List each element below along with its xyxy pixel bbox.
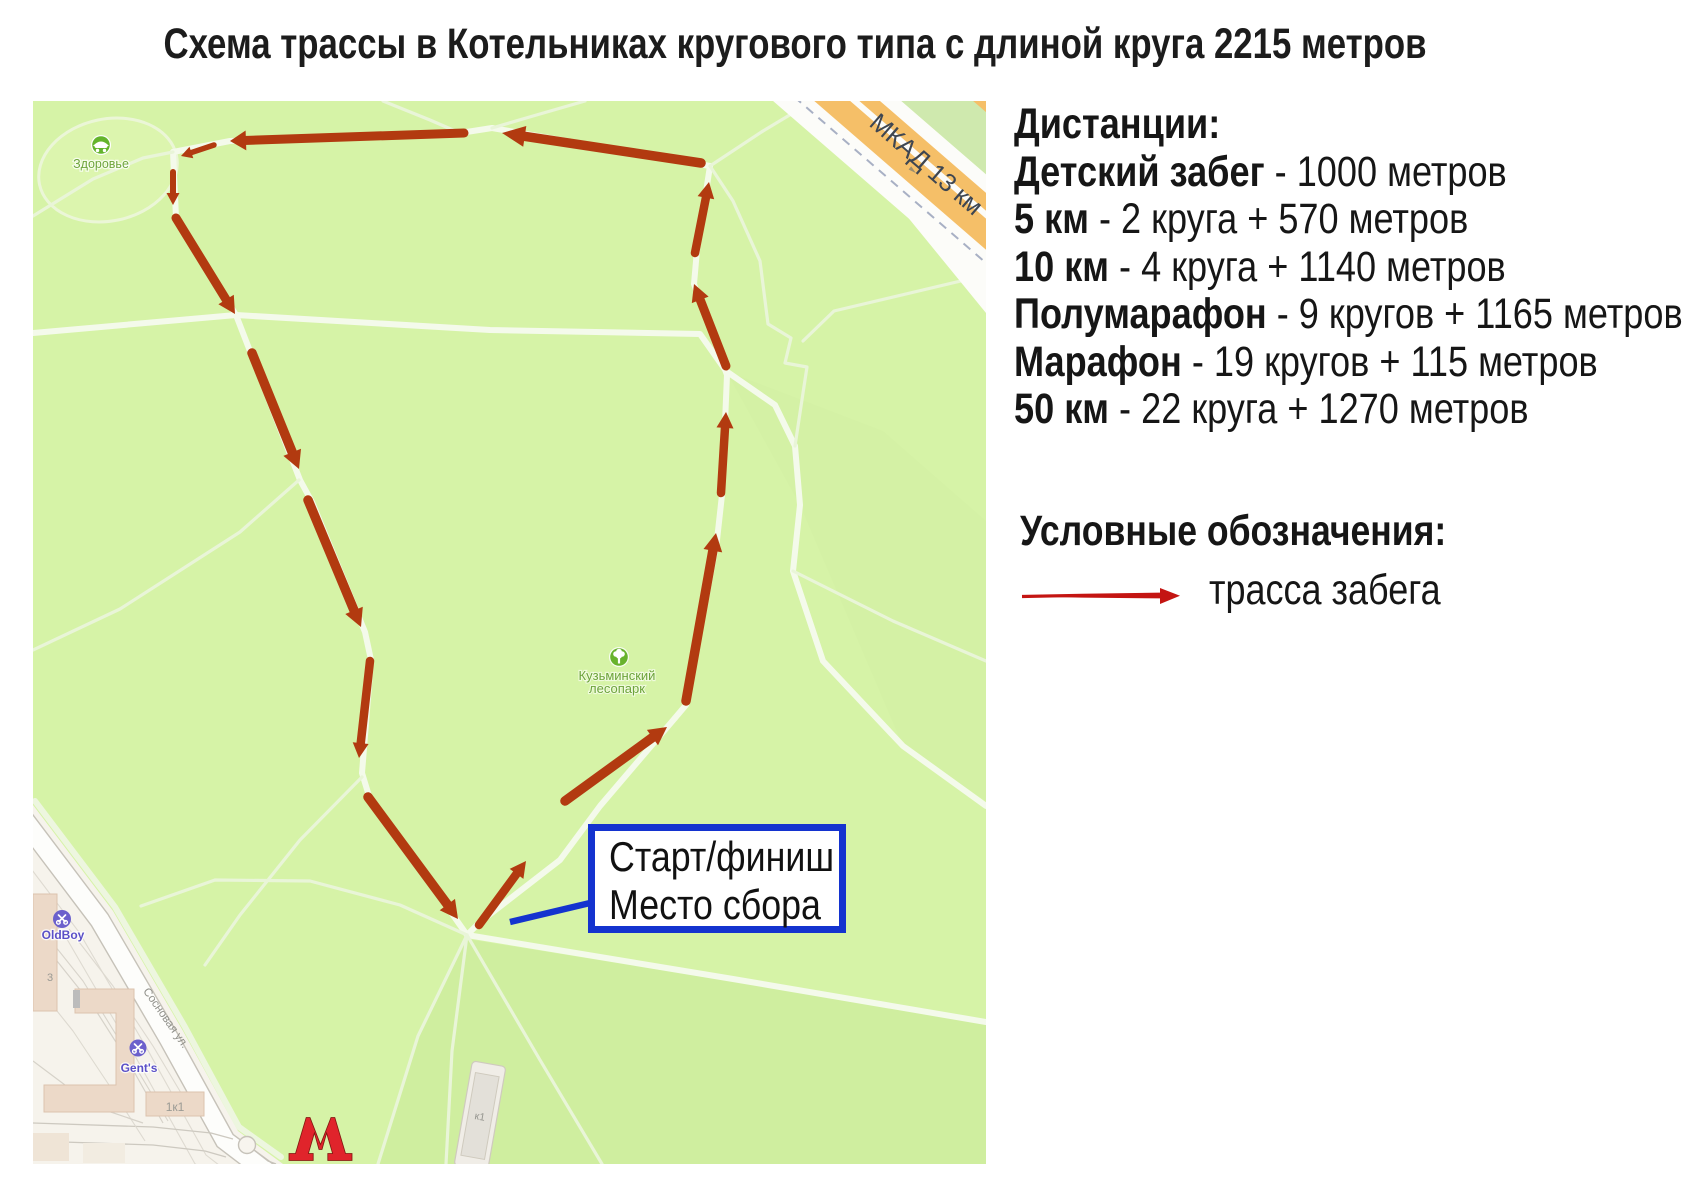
svg-text:Gent's: Gent's bbox=[121, 1061, 158, 1075]
svg-text:3: 3 bbox=[47, 972, 53, 984]
svg-text:OldBoy: OldBoy bbox=[42, 928, 85, 942]
svg-text:1к1: 1к1 bbox=[166, 1100, 185, 1114]
svg-text:лесопарк: лесопарк bbox=[589, 681, 645, 696]
svg-text:Здоровье: Здоровье bbox=[73, 157, 129, 171]
